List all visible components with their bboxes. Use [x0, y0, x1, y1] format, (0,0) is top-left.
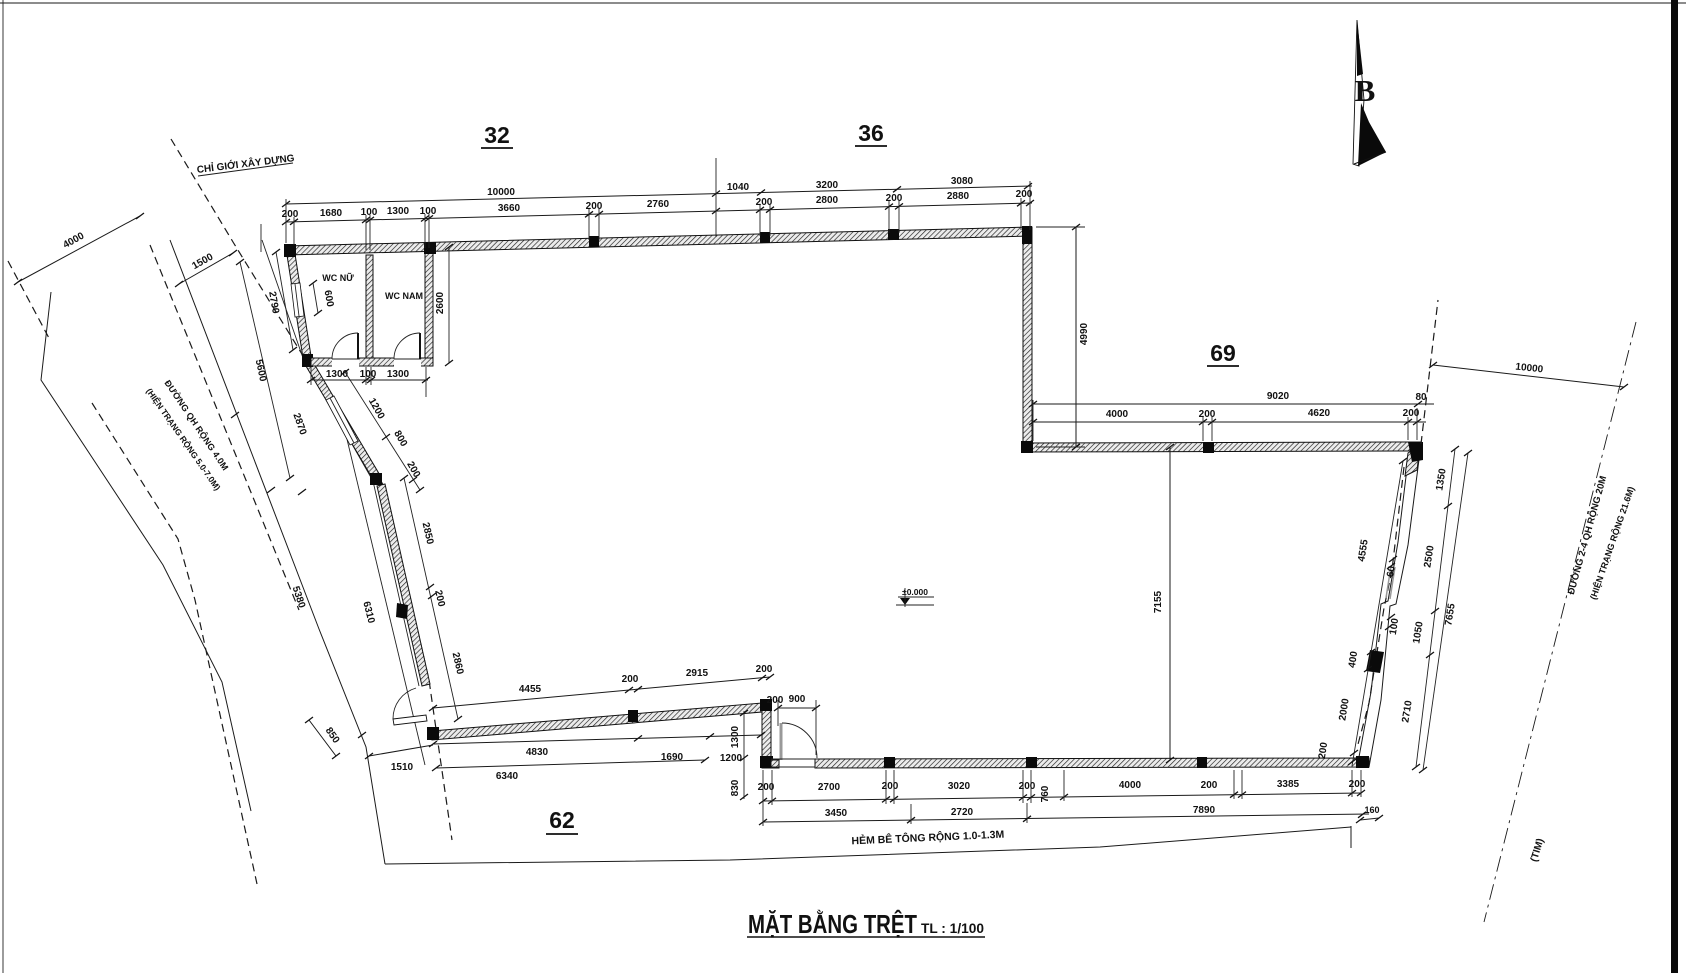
svg-text:1300: 1300	[730, 725, 741, 748]
svg-text:10000: 10000	[487, 187, 515, 198]
svg-text:4000: 4000	[1106, 409, 1129, 420]
svg-text:2880: 2880	[947, 191, 970, 202]
svg-text:2600: 2600	[435, 291, 446, 314]
svg-text:MẶT BẰNG TRỆT: MẶT BẰNG TRỆT	[748, 909, 917, 939]
svg-text:200: 200	[882, 781, 899, 792]
svg-text:B: B	[1355, 73, 1376, 108]
svg-text:2915: 2915	[686, 668, 709, 679]
svg-text:TL : 1/100: TL : 1/100	[921, 920, 984, 936]
svg-text:2760: 2760	[647, 199, 670, 210]
svg-text:200: 200	[1349, 779, 1366, 790]
svg-text:62: 62	[549, 807, 575, 833]
svg-text:69: 69	[1210, 340, 1236, 366]
svg-text:4990: 4990	[1079, 322, 1090, 345]
svg-text:200: 200	[622, 674, 639, 685]
svg-text:760: 760	[1040, 785, 1051, 802]
svg-text:32: 32	[484, 122, 510, 148]
svg-text:36: 36	[858, 120, 884, 146]
svg-text:200: 200	[886, 193, 903, 204]
svg-text:830: 830	[730, 779, 741, 796]
svg-text:6340: 6340	[496, 771, 519, 782]
svg-text:9020: 9020	[1267, 391, 1290, 402]
svg-text:WC NỮ: WC NỮ	[322, 273, 354, 283]
svg-text:200: 200	[282, 209, 299, 220]
svg-text:80: 80	[1415, 392, 1427, 403]
svg-text:4830: 4830	[526, 747, 549, 758]
svg-text:900: 900	[789, 694, 806, 705]
svg-text:4000: 4000	[1119, 780, 1142, 791]
svg-text:1510: 1510	[391, 762, 414, 773]
svg-text:200: 200	[1201, 780, 1218, 791]
svg-text:100: 100	[361, 207, 378, 218]
svg-text:2700: 2700	[818, 782, 841, 793]
svg-text:200: 200	[586, 201, 603, 212]
svg-text:3450: 3450	[825, 808, 848, 819]
svg-text:7155: 7155	[1153, 590, 1164, 613]
svg-text:3200: 3200	[816, 180, 839, 191]
svg-text:200: 200	[767, 695, 784, 706]
svg-text:1300: 1300	[326, 369, 349, 380]
svg-text:1300: 1300	[387, 369, 410, 380]
svg-text:7890: 7890	[1193, 805, 1216, 816]
svg-text:200: 200	[1019, 781, 1036, 792]
svg-text:100: 100	[360, 369, 377, 380]
svg-text:2720: 2720	[951, 807, 974, 818]
svg-text:3020: 3020	[948, 781, 971, 792]
svg-text:2800: 2800	[816, 195, 839, 206]
svg-text:100: 100	[420, 206, 437, 217]
svg-text:WC NAM: WC NAM	[385, 291, 423, 301]
svg-text:160: 160	[1364, 805, 1379, 815]
svg-text:1300: 1300	[387, 206, 410, 217]
svg-text:3080: 3080	[951, 176, 974, 187]
svg-text:3660: 3660	[498, 203, 521, 214]
svg-text:200: 200	[1199, 409, 1216, 420]
svg-text:60: 60	[1385, 565, 1398, 578]
svg-text:1200: 1200	[720, 753, 743, 764]
svg-text:1040: 1040	[727, 182, 750, 193]
svg-text:3385: 3385	[1277, 779, 1300, 790]
svg-text:1680: 1680	[320, 208, 343, 219]
svg-text:4455: 4455	[519, 684, 542, 695]
svg-text:±0.000: ±0.000	[902, 587, 928, 597]
svg-text:4620: 4620	[1308, 408, 1331, 419]
svg-text:200: 200	[756, 664, 773, 675]
